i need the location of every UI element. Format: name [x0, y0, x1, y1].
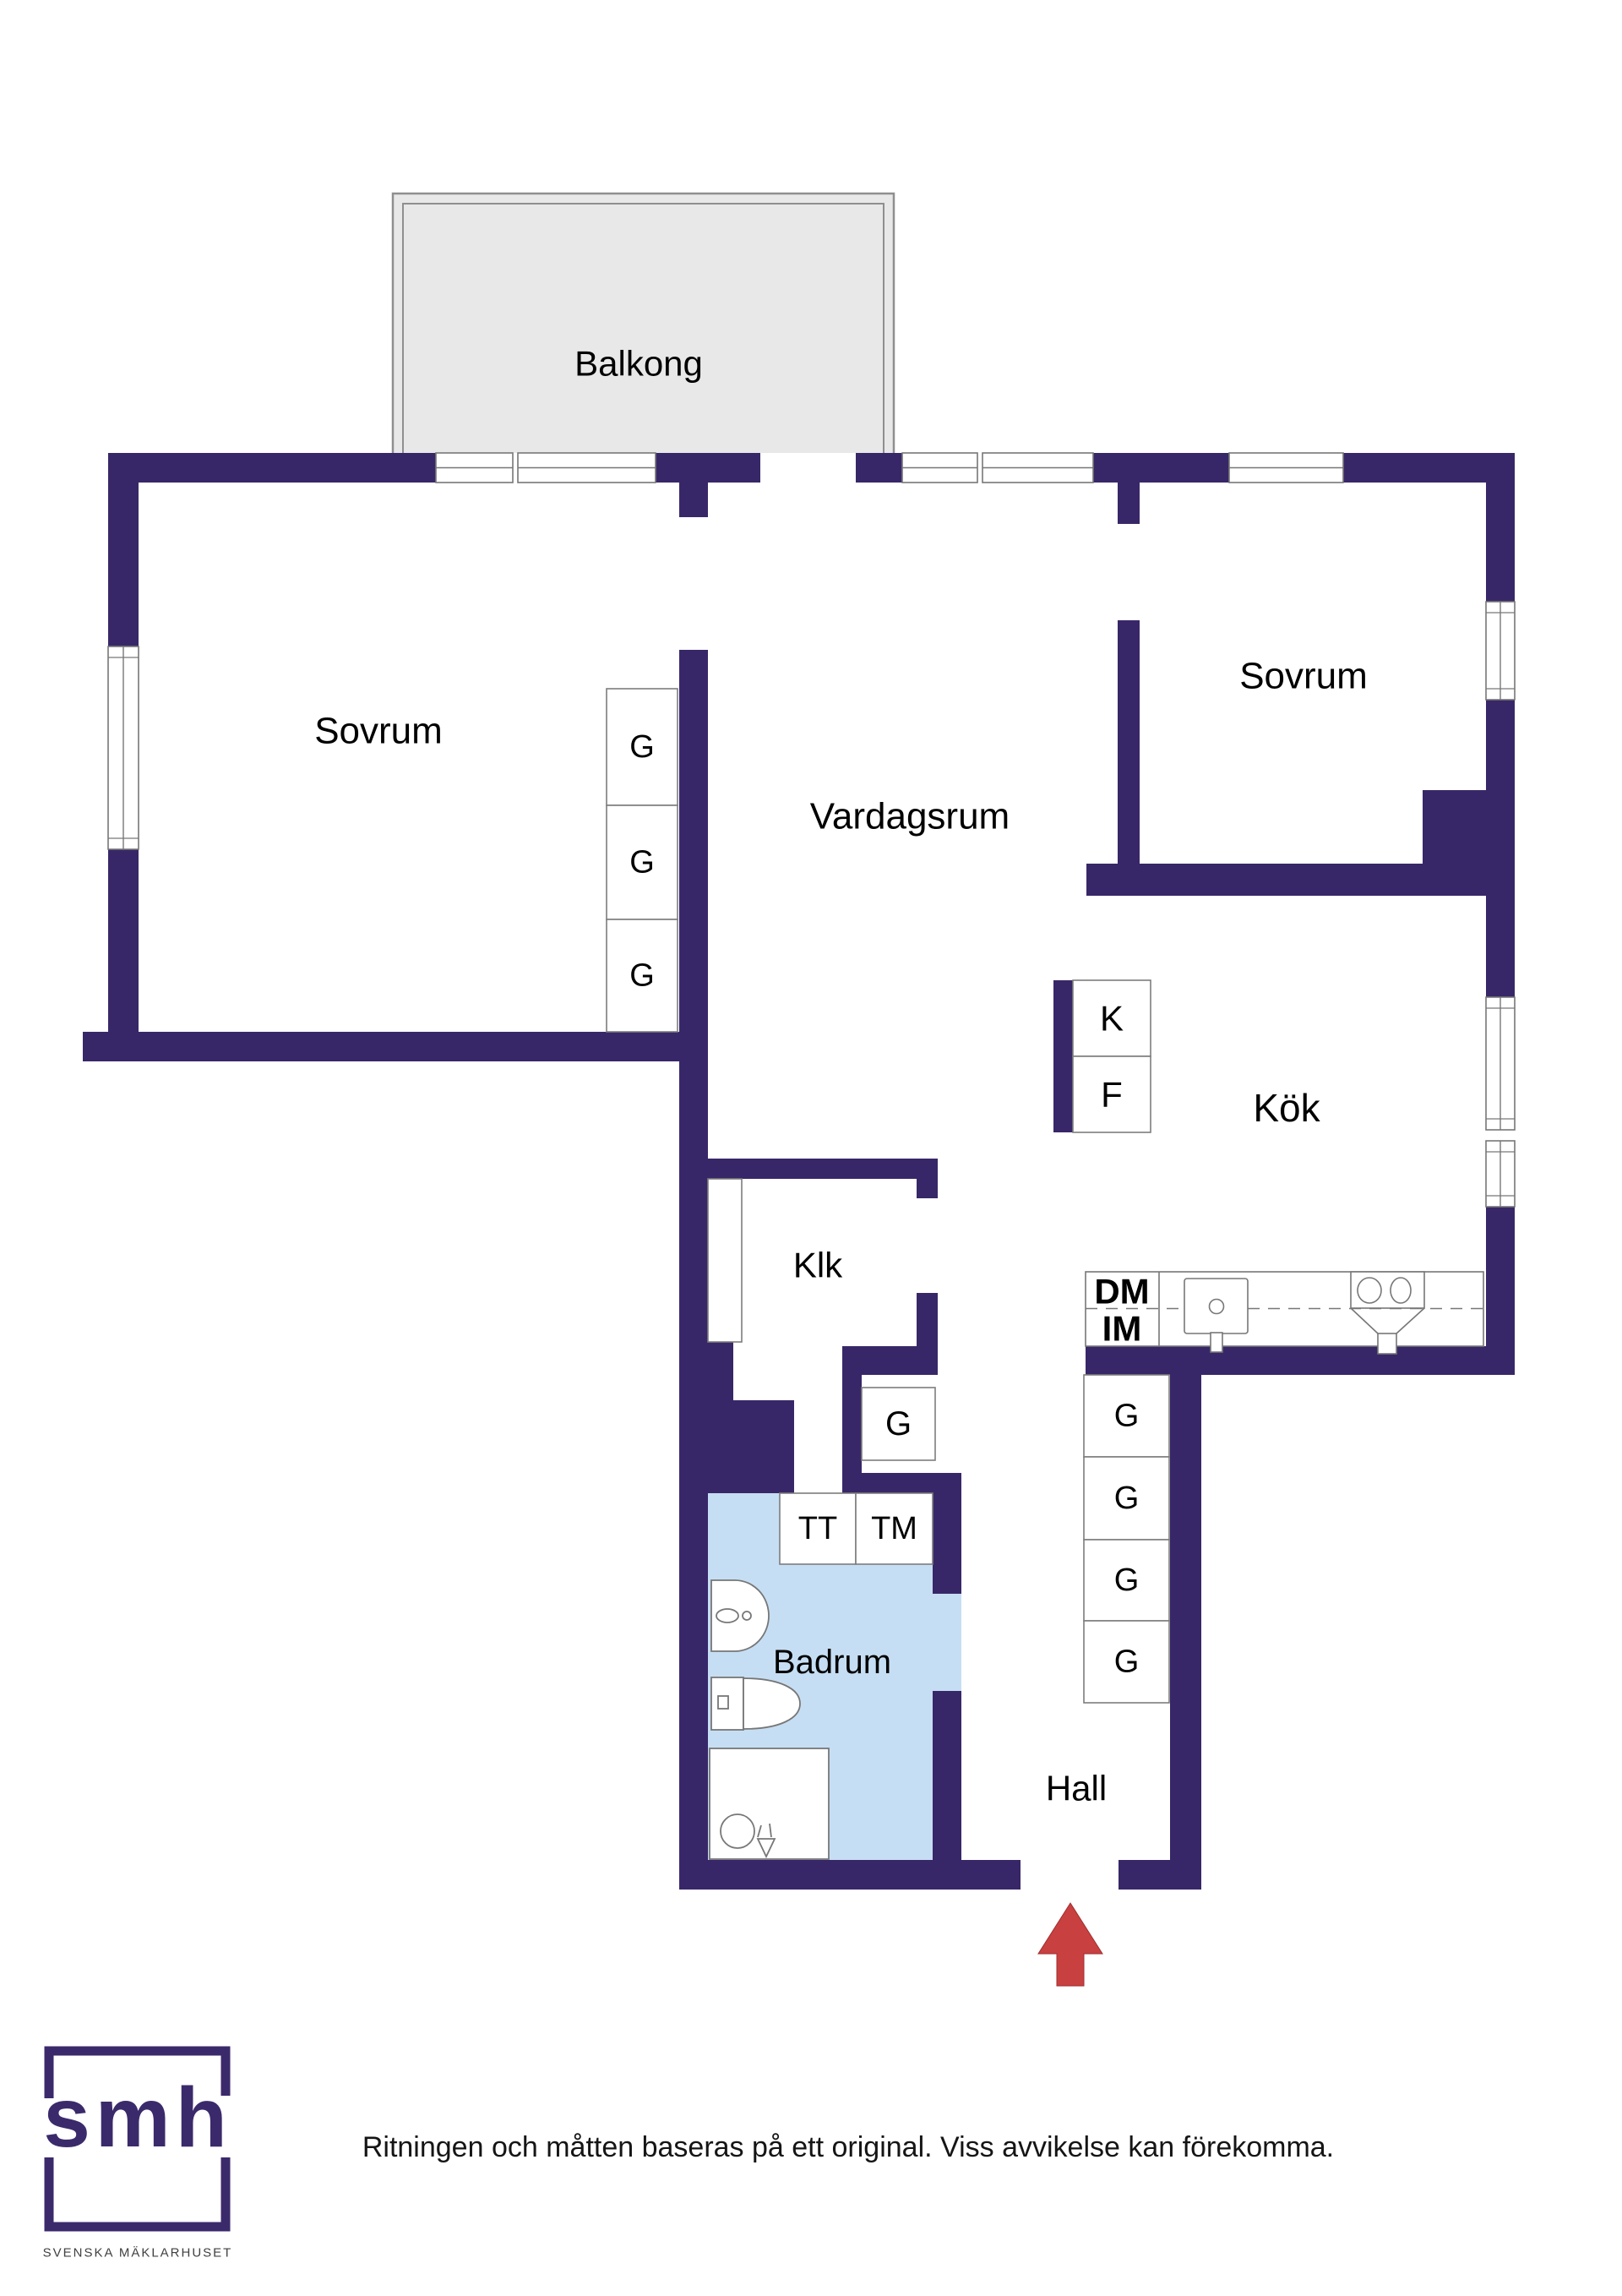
washer-box-label: TM	[871, 1511, 917, 1546]
entrance-arrow	[1038, 1903, 1102, 1986]
klk-top-cap	[917, 1179, 938, 1198]
bedroom1-bottom-wall	[83, 1032, 708, 1061]
stove-handle	[1211, 1333, 1222, 1352]
footer-disclaimer: Ritningen och måtten baseras på ett orig…	[362, 2131, 1334, 2163]
bath-block-b	[733, 1400, 794, 1493]
logo-subtitle: SVENSKA MÄKLARHUSET	[43, 2246, 233, 2261]
appliance-label-im: IM	[1102, 1309, 1142, 1349]
washbasin-knob	[743, 1612, 751, 1620]
room-label-vardagsrum: Vardagsrum	[810, 796, 1010, 837]
room-label-sovrum-right: Sovrum	[1239, 656, 1368, 697]
logo-wordmark: smh	[43, 2070, 232, 2165]
klk-top-wall	[708, 1159, 938, 1179]
wardrobe-bedroom1-1-label: G	[629, 729, 655, 765]
divider2-main	[1118, 620, 1140, 864]
wardrobe-klk-side-label: G	[885, 1405, 912, 1442]
left-wall-upper	[108, 453, 139, 646]
right-wall-c	[1486, 1207, 1515, 1375]
right-wall-a	[1486, 453, 1515, 602]
kitchen-bottom-wall	[1086, 1346, 1513, 1375]
wardrobe-bedroom1-3-label: G	[629, 958, 655, 994]
top-wall-b	[656, 453, 760, 483]
floorplan-canvas: GGGKFGGGGGTTTMBalkongSovrumSovrumVardags…	[0, 0, 1622, 2296]
kf-strip	[1053, 980, 1073, 1132]
washbasin-tap	[716, 1609, 738, 1622]
logo-frame-segment-1	[49, 2157, 226, 2227]
wardrobe-hall-4-label: G	[1114, 1644, 1140, 1680]
appliance-label-dm: DM	[1094, 1272, 1149, 1312]
bottom-wall-right	[1119, 1860, 1201, 1890]
balcony-floor	[393, 194, 894, 453]
freezer-box-label: F	[1101, 1075, 1123, 1115]
room-label-badrum: Badrum	[773, 1644, 891, 1681]
room-label-klk: Klk	[793, 1246, 843, 1285]
fridge-box-label: K	[1100, 999, 1124, 1039]
left-wall-lower	[108, 849, 139, 1061]
bath-block-a	[708, 1342, 733, 1493]
bedroom2-corner-block	[1423, 790, 1486, 864]
top-wall-d	[1093, 453, 1229, 483]
room-label-kok: Kök	[1253, 1086, 1320, 1130]
bottom-wall-left	[679, 1860, 1021, 1890]
hall-right-wall	[1170, 1375, 1201, 1860]
bath-top-band	[862, 1473, 961, 1493]
sink-basin-left	[1358, 1278, 1381, 1303]
divider1-top-stub	[679, 483, 708, 517]
divider2-top	[1118, 483, 1140, 524]
wardrobe-bedroom1-2-label: G	[629, 845, 655, 881]
jog-vertical	[842, 1346, 862, 1493]
sink-drain	[1378, 1333, 1396, 1354]
top-wall-a	[108, 453, 436, 483]
wardrobe-hall-2-label: G	[1114, 1481, 1140, 1516]
sink-basin-right	[1391, 1278, 1411, 1303]
wardrobe-hall-3-label: G	[1114, 1562, 1140, 1598]
bath-right-lower	[933, 1691, 961, 1860]
bath-right-upper	[933, 1493, 961, 1594]
dryer-box-label: TT	[798, 1511, 837, 1546]
right-wall-b	[1486, 700, 1515, 997]
room-label-hall: Hall	[1046, 1769, 1107, 1808]
shower-drain-circle	[721, 1814, 754, 1848]
top-wall-c	[856, 453, 902, 483]
stove-knob	[1210, 1300, 1224, 1314]
klk-closet-strip	[708, 1179, 742, 1342]
wardrobe-hall-1-label: G	[1114, 1399, 1140, 1434]
divider1-main	[679, 650, 708, 1890]
toilet-button	[718, 1696, 728, 1709]
bedroom2-bottom-wall	[1086, 864, 1486, 896]
room-label-balkong: Balkong	[574, 344, 703, 384]
room-label-sovrum-left: Sovrum	[314, 711, 443, 752]
